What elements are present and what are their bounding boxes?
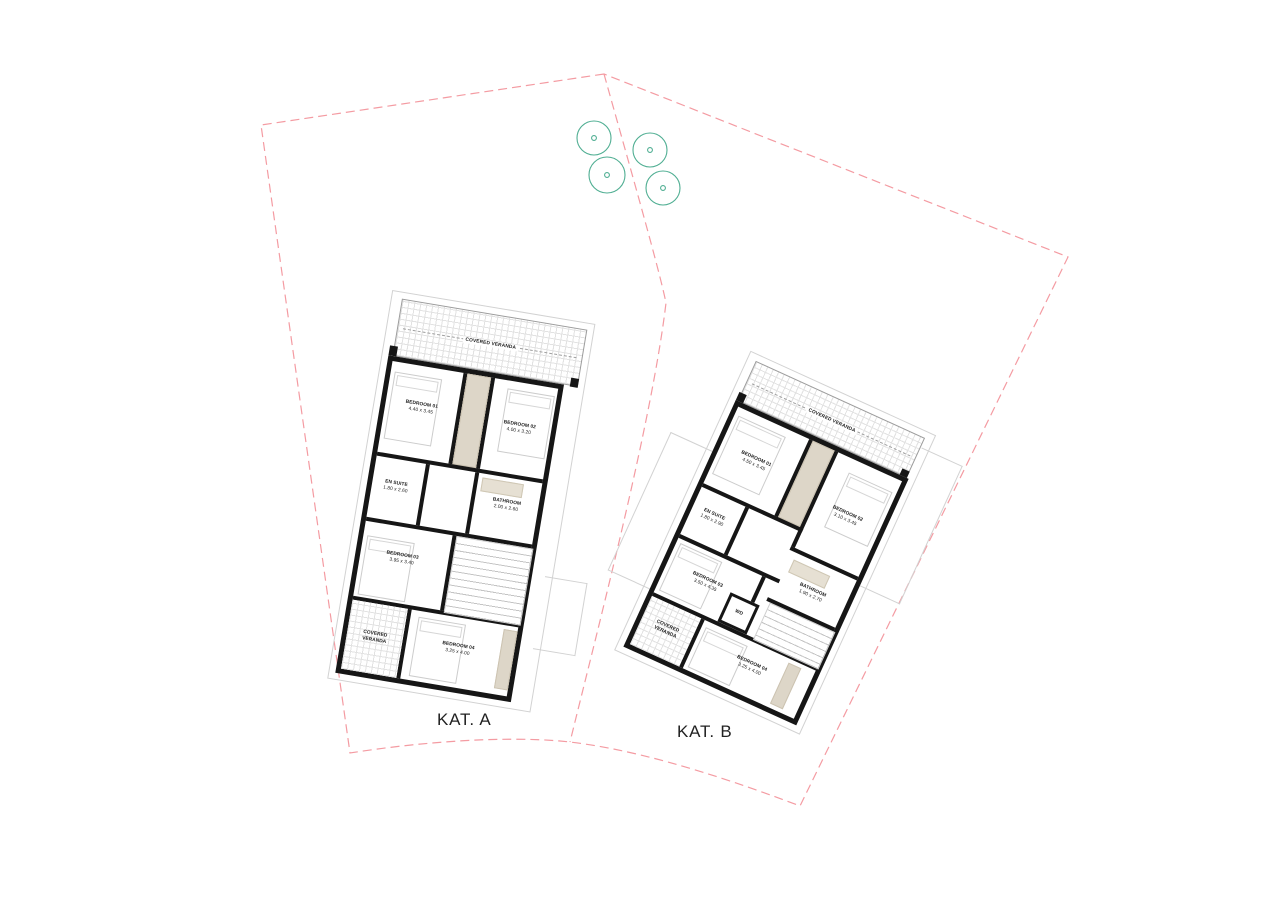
wardrobe <box>770 663 801 710</box>
room-label: EN SUITE 1.80 x 2.90 <box>699 507 727 529</box>
lot-label-kat-a: KAT. A <box>437 710 492 730</box>
bed <box>358 535 415 602</box>
site-layer <box>0 0 1280 905</box>
lot-label-kat-b: KAT. B <box>677 722 733 742</box>
room-label: COVERED VERANDA <box>463 336 519 352</box>
wall <box>724 507 749 556</box>
staircase <box>444 536 534 626</box>
room-label: BEDROOM 04 3.25 x 4.00 <box>733 655 768 680</box>
wall <box>465 472 479 534</box>
room-label: EN SUITE 1.80 x 2.60 <box>383 479 409 495</box>
site-plan-sheet: COVERED VERANDA <box>0 0 1280 905</box>
bathtub <box>480 477 524 498</box>
wardrobe <box>494 629 518 690</box>
veranda-pier <box>570 378 579 388</box>
room-label: COVERED VERANDA <box>805 406 859 435</box>
wall <box>416 464 430 526</box>
room-label: BATHROOM 2.00 x 2.60 <box>491 497 521 514</box>
